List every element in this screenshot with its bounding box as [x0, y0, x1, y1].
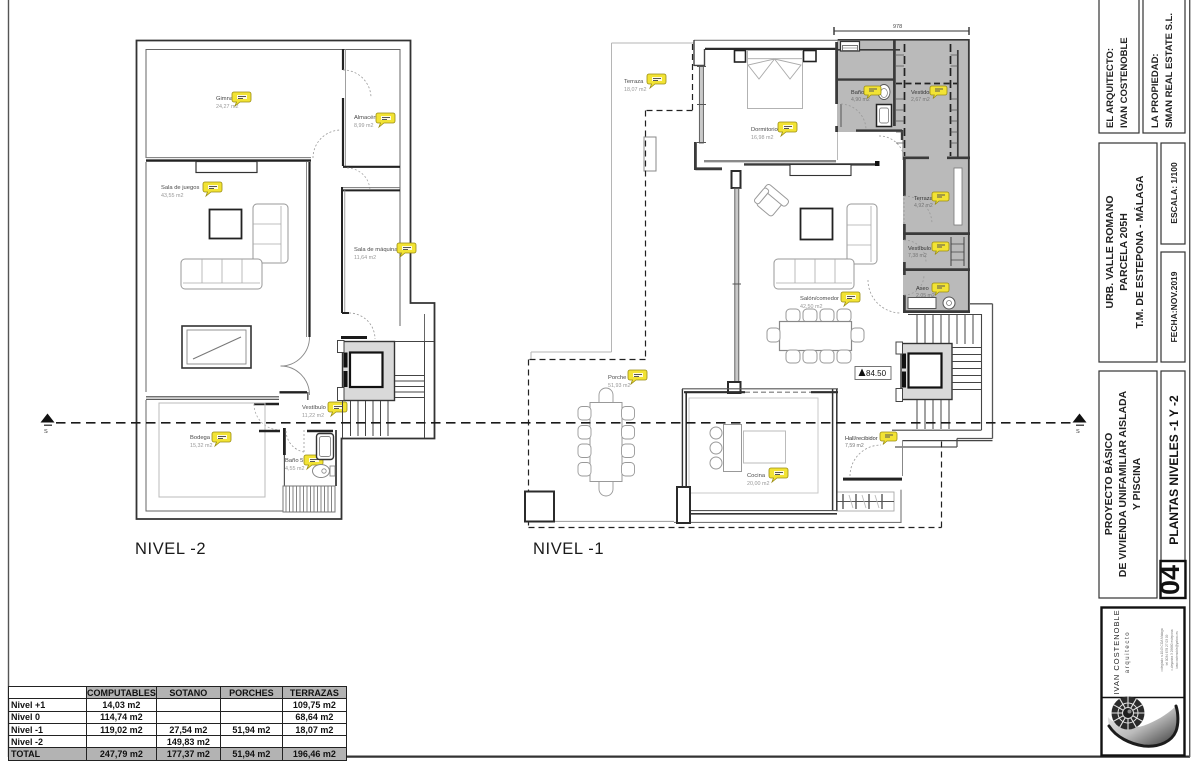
svg-text:18,07 m2: 18,07 m2 [624, 87, 646, 93]
svg-text:Y PISCINA: Y PISCINA [1131, 457, 1143, 510]
svg-text:PLANTAS NIVELES -1 Y -2: PLANTAS NIVELES -1 Y -2 [1167, 395, 1181, 545]
svg-text:Baño 5: Baño 5 [285, 458, 303, 464]
svg-text:PARCELA 205H: PARCELA 205H [1118, 213, 1130, 291]
svg-text:7,59 m2: 7,59 m2 [845, 443, 864, 449]
svg-text:ESCALA: 1/100: ESCALA: 1/100 [1169, 162, 1179, 224]
svg-text:Bodega: Bodega [190, 435, 211, 441]
svg-text:84.50: 84.50 [866, 369, 887, 378]
svg-text:Cocina: Cocina [747, 473, 766, 479]
svg-text:NIVEL -1: NIVEL -1 [533, 540, 604, 558]
svg-text:tel 0034 678 27 03 09: tel 0034 678 27 03 09 [1165, 634, 1169, 665]
svg-text:IVAN COSTENOBLE: IVAN COSTENOBLE [1119, 37, 1130, 128]
svg-text:Almacén: Almacén [354, 115, 377, 121]
svg-text:Sala de juegos: Sala de juegos [161, 185, 199, 191]
svg-text:T.M. DE ESTEPONA - MÁLAGA: T.M. DE ESTEPONA - MÁLAGA [1133, 175, 1146, 328]
svg-text:URB. VALLE ROMANO: URB. VALLE ROMANO [1104, 196, 1116, 309]
svg-text:SMAN REAL ESTATE S.L.: SMAN REAL ESTATE S.L. [1164, 13, 1175, 128]
svg-text:4,55 m2: 4,55 m2 [285, 466, 304, 472]
svg-text:NIVEL -2: NIVEL -2 [135, 540, 206, 558]
svg-text:51,93 m2: 51,93 m2 [608, 383, 630, 389]
svg-text:Vestíbulo: Vestíbulo [908, 246, 931, 252]
svg-text:Terraza: Terraza [624, 79, 644, 85]
svg-text:7,38 m2: 7,38 m2 [908, 253, 927, 259]
svg-text:S: S [44, 429, 48, 435]
svg-text:Vestíbulo: Vestíbulo [302, 405, 326, 411]
svg-text:arquitecto: arquitecto [1125, 631, 1131, 673]
svg-text:DE VIVIENDA UNIFAMILIAR AISLAD: DE VIVIENDA UNIFAMILIAR AISLADA [1117, 390, 1129, 577]
svg-text:ivancostenoble@yahoo.es: ivancostenoble@yahoo.es [1175, 631, 1179, 669]
svg-text:c.deyanira 3 29680 estepona: c.deyanira 3 29680 estepona [1170, 629, 1174, 670]
svg-text:4,92 m2: 4,92 m2 [914, 203, 933, 209]
svg-text:978: 978 [893, 24, 902, 30]
svg-text:Aseo: Aseo [916, 286, 929, 292]
svg-text:FECHA:NOV.2019: FECHA:NOV.2019 [1169, 271, 1179, 342]
svg-text:Vestidor: Vestidor [911, 90, 931, 96]
svg-text:EL ARQUITECTO:: EL ARQUITECTO: [1105, 48, 1116, 128]
svg-text:colegiado n.1043 COA Malaga: colegiado n.1043 COA Malaga [1160, 628, 1164, 671]
svg-text:S: S [1076, 429, 1080, 435]
svg-text:16,98 m2: 16,98 m2 [751, 135, 773, 141]
svg-text:LA PROPIEDAD:: LA PROPIEDAD: [1150, 53, 1161, 128]
svg-text:43,55 m2: 43,55 m2 [161, 193, 183, 199]
svg-text:04: 04 [1155, 565, 1185, 595]
svg-text:2,67 m2: 2,67 m2 [911, 97, 930, 103]
svg-text:Porche: Porche [608, 375, 626, 381]
svg-text:20,00 m2: 20,00 m2 [747, 481, 769, 487]
svg-text:15,32 m2: 15,32 m2 [190, 443, 212, 449]
svg-text:Salón/comedor: Salón/comedor [800, 296, 839, 302]
svg-text:IVAN COSTENOBLE: IVAN COSTENOBLE [1112, 609, 1121, 694]
svg-text:Hall/recibidor: Hall/recibidor [845, 436, 878, 442]
svg-text:Sala de máquinas: Sala de máquinas [354, 247, 401, 253]
svg-text:PROYECTO BÁSICO: PROYECTO BÁSICO [1102, 433, 1115, 536]
svg-text:Terraza: Terraza [914, 196, 934, 202]
svg-text:11,22 m2: 11,22 m2 [302, 413, 324, 419]
svg-text:Dormitorio: Dormitorio [751, 127, 778, 133]
svg-text:8,99 m2: 8,99 m2 [354, 123, 373, 129]
svg-text:11,64 m2: 11,64 m2 [354, 255, 376, 261]
